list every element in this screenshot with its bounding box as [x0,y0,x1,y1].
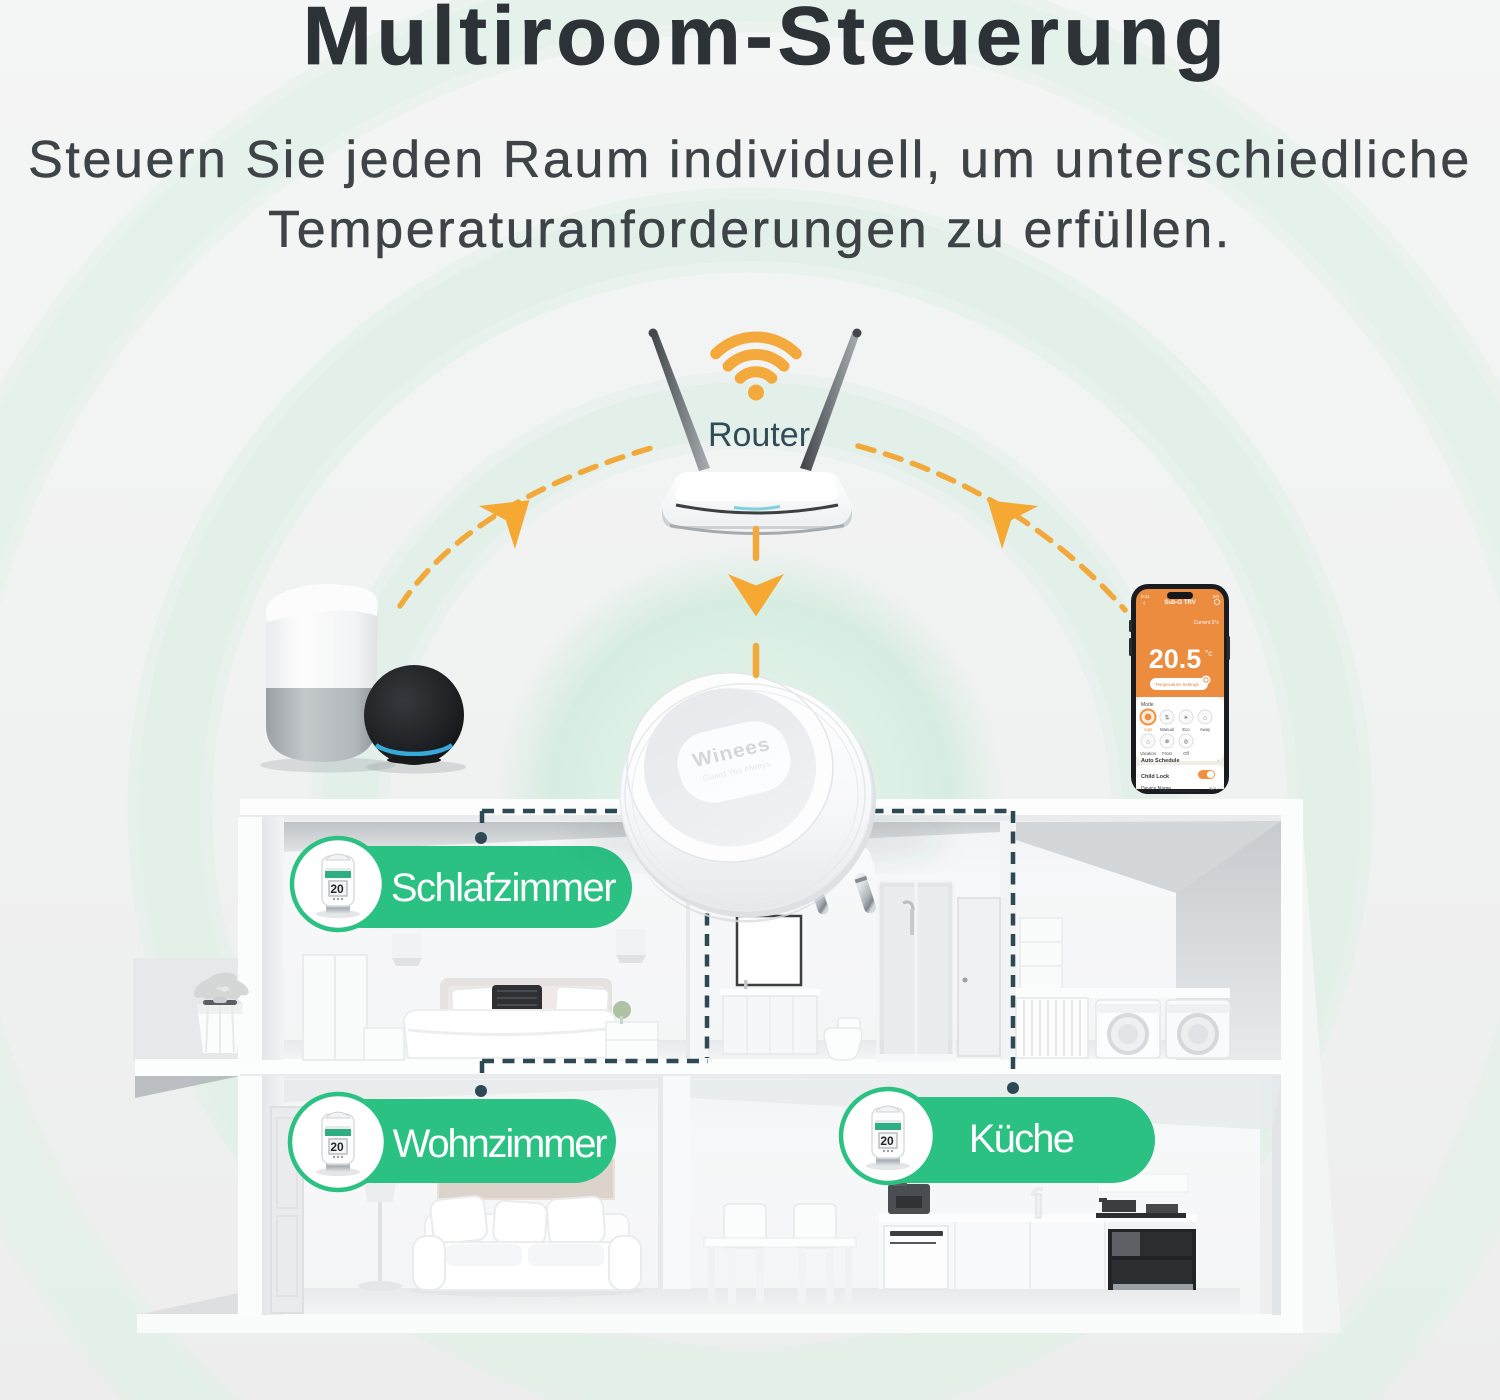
svg-text:Mode: Mode [1141,702,1154,708]
svg-text:Vacation: Vacation [1140,751,1157,756]
svg-text:⌂: ⌂ [1203,716,1207,722]
svg-text:Schlafzimmer: Schlafzimmer [391,866,616,910]
svg-text:❄: ❄ [1164,739,1169,746]
svg-text:Off: Off [1183,751,1189,756]
svg-text:Child Lock: Child Lock [1141,774,1170,780]
svg-text:☀: ☀ [1183,715,1188,722]
svg-text:N/A ›: N/A › [1209,786,1220,791]
svg-text:Sub-G TRV: Sub-G TRV [1164,600,1196,606]
svg-text:20.5: 20.5 [1149,644,1202,674]
svg-text:›: › [1217,758,1219,764]
svg-text:Router: Router [708,416,810,454]
svg-text:Auto Schedule: Auto Schedule [1141,758,1180,764]
svg-text:Current 5°c: Current 5°c [1194,620,1220,626]
svg-text:⌂: ⌂ [1146,740,1150,746]
svg-text:°c: °c [1205,649,1212,658]
svg-text:Away: Away [1200,727,1211,732]
svg-text:⇅: ⇅ [1164,716,1169,722]
svg-text:Manual: Manual [1160,727,1174,732]
svg-text:⊘: ⊘ [1183,740,1188,746]
svg-text:5G: 5G [1213,594,1220,599]
svg-text:Wohnzimmer: Wohnzimmer [393,1122,608,1166]
svg-text:Frost: Frost [1162,751,1172,756]
svg-text:Auto: Auto [1144,727,1153,732]
svg-text:Eco: Eco [1182,727,1190,732]
svg-text:9:41: 9:41 [1141,594,1150,599]
svg-text:Küche: Küche [969,1117,1074,1161]
svg-text:Temperature Settings: Temperature Settings [1155,682,1199,687]
